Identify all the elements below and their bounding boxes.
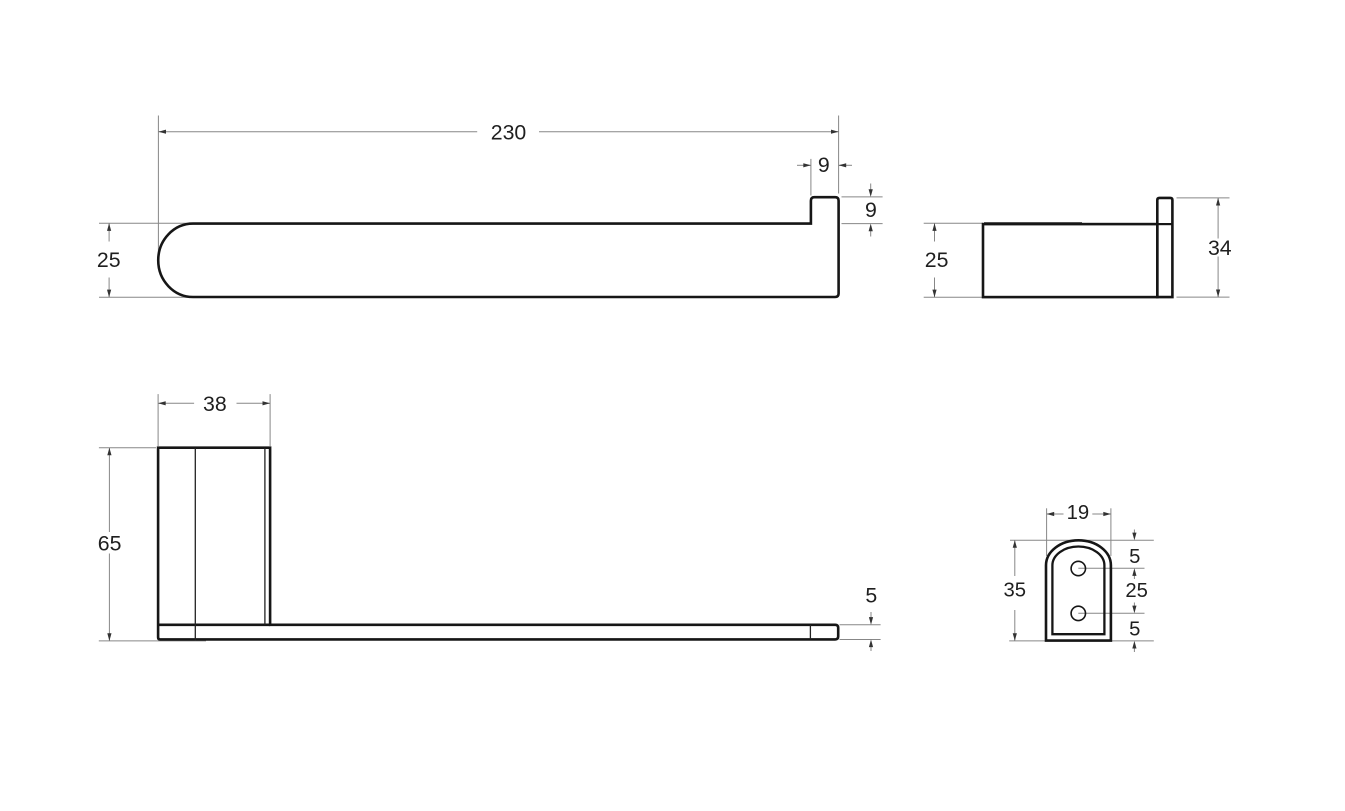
svg-text:65: 65 xyxy=(98,531,122,555)
svg-text:230: 230 xyxy=(491,120,527,144)
svg-text:25: 25 xyxy=(97,248,121,272)
svg-text:34: 34 xyxy=(1208,236,1232,260)
svg-text:38: 38 xyxy=(203,392,227,416)
svg-text:19: 19 xyxy=(1067,502,1090,524)
svg-text:5: 5 xyxy=(1129,546,1140,568)
svg-text:9: 9 xyxy=(865,198,877,222)
svg-text:5: 5 xyxy=(865,584,877,608)
svg-text:5: 5 xyxy=(1129,618,1140,640)
svg-text:25: 25 xyxy=(1125,580,1148,602)
svg-text:25: 25 xyxy=(925,248,949,272)
svg-text:9: 9 xyxy=(818,153,830,177)
svg-text:35: 35 xyxy=(1004,580,1027,602)
